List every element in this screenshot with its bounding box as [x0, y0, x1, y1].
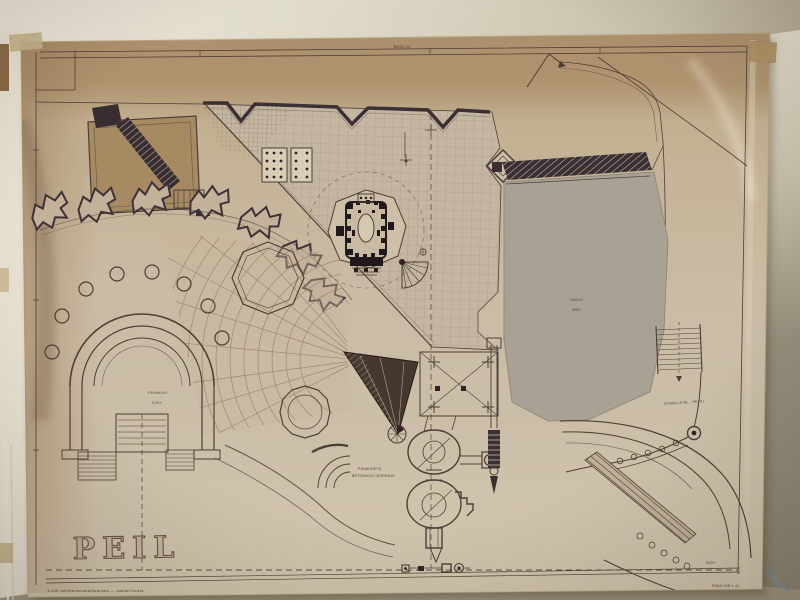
photo-vignette [0, 0, 800, 600]
photo-of-site-plan: PEIL 1:100 raekttenkonstatlinanseo — vak… [0, 0, 800, 600]
